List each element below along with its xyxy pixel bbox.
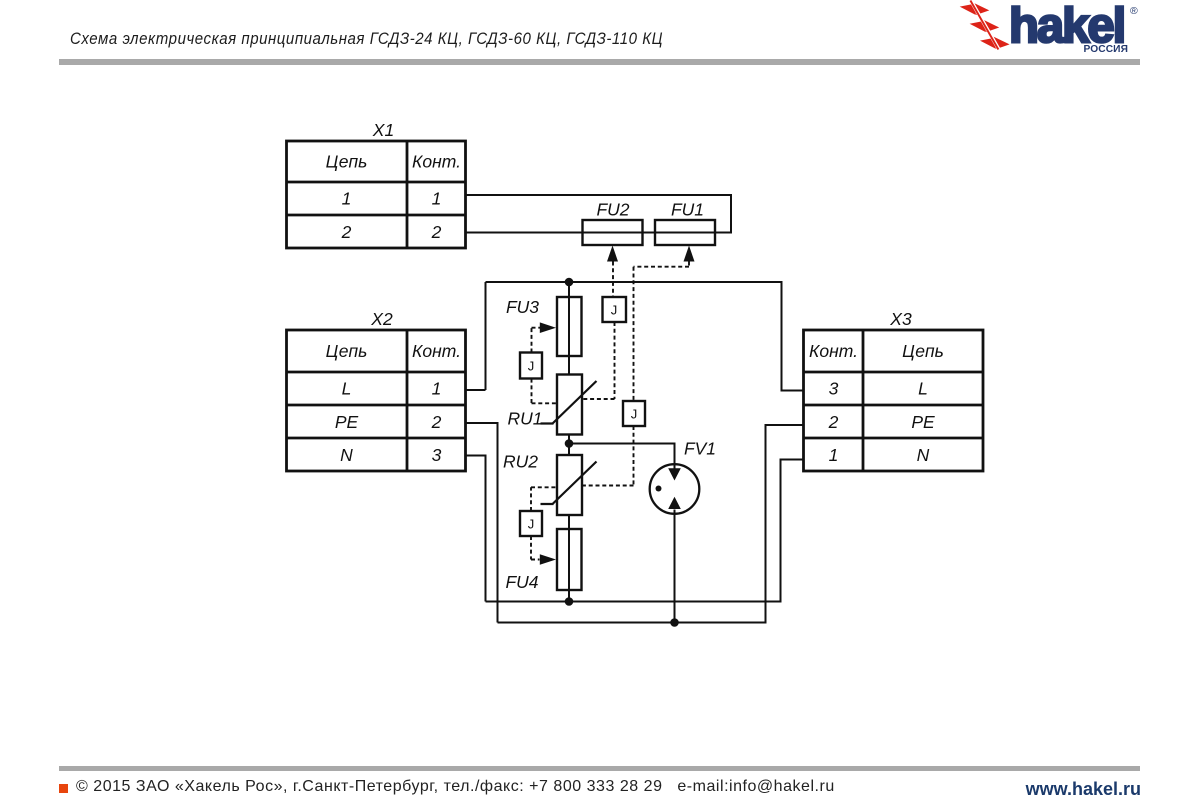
svg-text:1: 1: [432, 379, 442, 399]
svg-text:Конт.: Конт.: [412, 341, 461, 361]
svg-text:FU4: FU4: [505, 572, 538, 592]
svg-text:L: L: [918, 379, 928, 399]
svg-text:2: 2: [431, 412, 442, 432]
svg-text:2: 2: [828, 412, 839, 432]
svg-text:FV1: FV1: [684, 439, 716, 459]
svg-text:PE: PE: [335, 412, 359, 432]
svg-text:J: J: [528, 359, 535, 374]
svg-text:1: 1: [829, 445, 839, 465]
svg-text:X3: X3: [889, 309, 912, 329]
svg-text:RU1: RU1: [507, 409, 542, 429]
svg-text:3: 3: [829, 379, 839, 399]
svg-text:RU2: RU2: [503, 452, 538, 472]
svg-text:2: 2: [341, 222, 352, 242]
svg-text:X1: X1: [372, 120, 394, 140]
svg-text:1: 1: [432, 189, 442, 209]
svg-text:FU3: FU3: [506, 297, 539, 317]
svg-text:PE: PE: [911, 412, 935, 432]
svg-text:Цепь: Цепь: [326, 341, 368, 361]
svg-text:X2: X2: [370, 309, 393, 329]
svg-text:Цепь: Цепь: [326, 152, 368, 172]
svg-text:N: N: [917, 445, 930, 465]
svg-text:J: J: [631, 407, 638, 422]
svg-text:2: 2: [431, 222, 442, 242]
svg-text:Конт.: Конт.: [809, 341, 858, 361]
svg-text:3: 3: [432, 445, 442, 465]
svg-text:J: J: [611, 303, 618, 318]
svg-text:Конт.: Конт.: [412, 152, 461, 172]
svg-text:L: L: [342, 379, 352, 399]
svg-text:N: N: [340, 445, 353, 465]
svg-text:J: J: [528, 517, 535, 532]
svg-text:FU1: FU1: [671, 200, 704, 220]
svg-text:Цепь: Цепь: [902, 341, 944, 361]
svg-text:FU2: FU2: [596, 200, 629, 220]
svg-text:1: 1: [342, 189, 352, 209]
